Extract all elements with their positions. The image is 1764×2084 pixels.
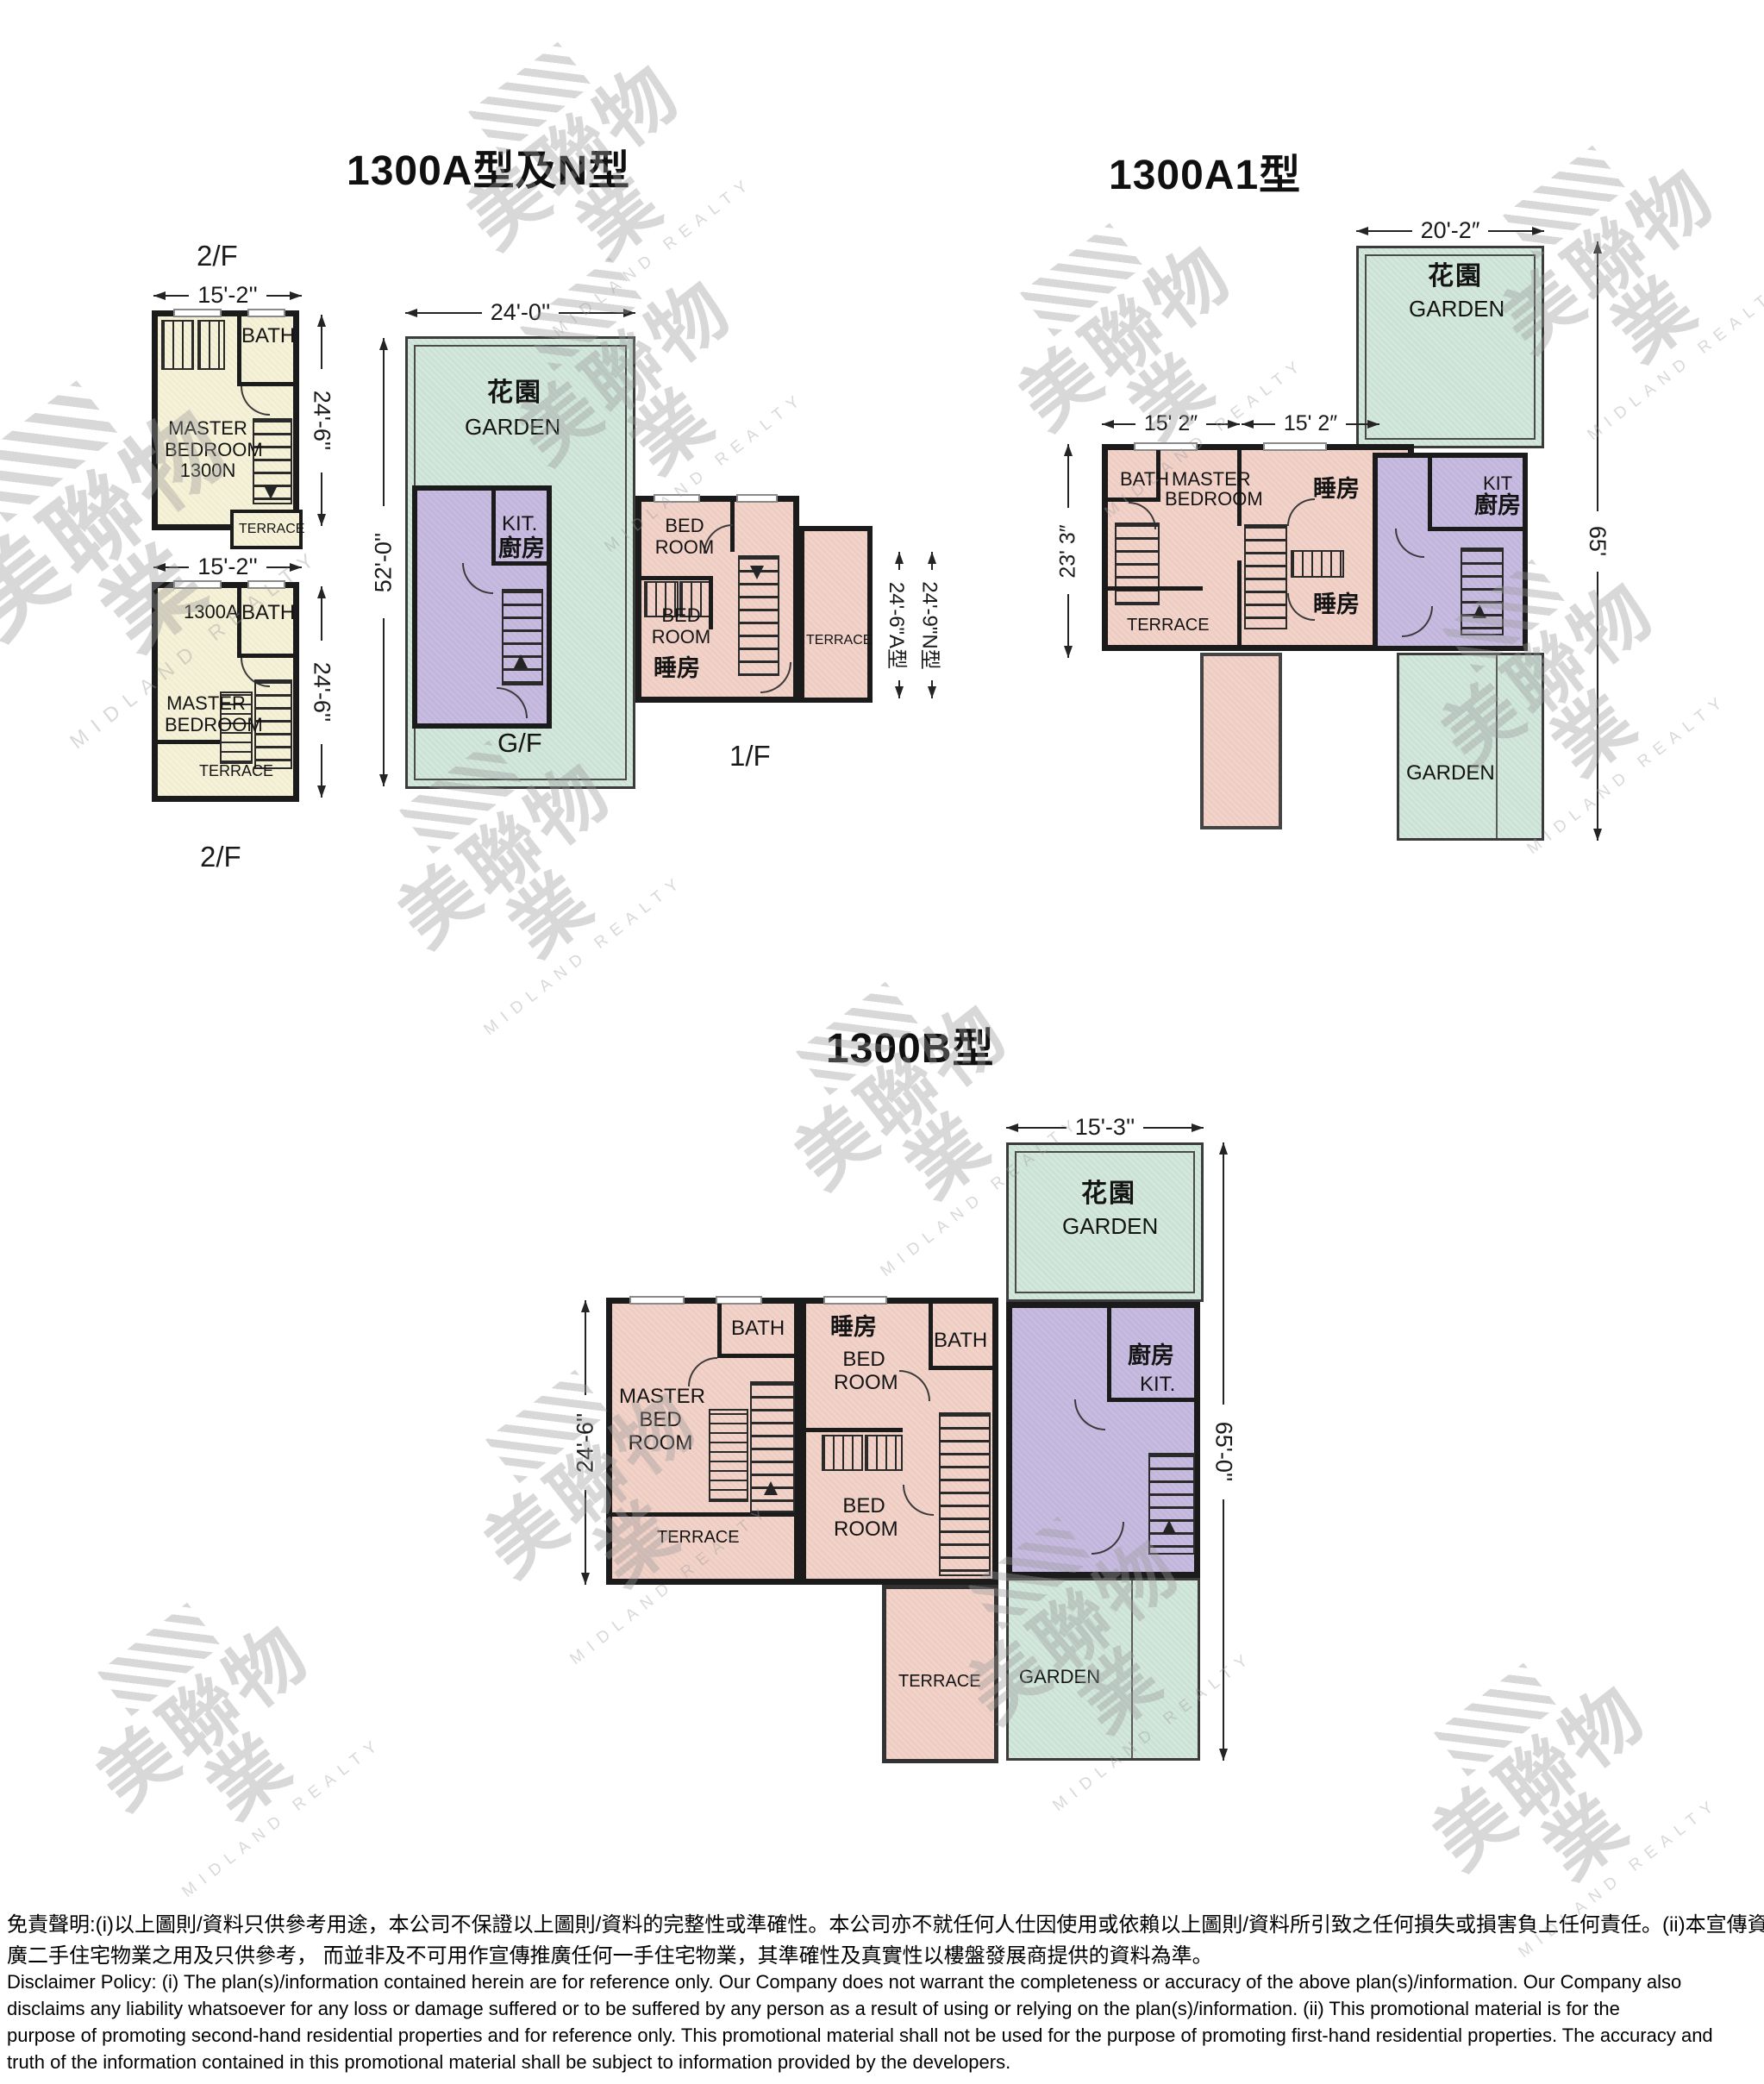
dim-text: 23' 3″ [1056, 524, 1081, 578]
section-title-1300a-n: 1300A型及N型 [347, 136, 630, 197]
dim-15-2-n2f: 15'-2'' [153, 282, 302, 309]
staircase [502, 589, 543, 685]
garden-label-en: GARDEN [465, 415, 560, 440]
stair-arrow-down [264, 485, 278, 499]
stair-arrow-down [750, 566, 764, 579]
garden-label-zh: 花園 [487, 379, 542, 408]
watermark-en: MIDLAND REALTY [1492, 1775, 1748, 1981]
door-arc [1287, 498, 1315, 526]
garden-divider [1496, 655, 1498, 838]
floorplan-page: 1300A型及N型 1300A1型 1300B型 2/F 15'-2'' BAT… [0, 0, 1764, 2084]
dim-15-3-b: 15'-3'' [1006, 1114, 1204, 1141]
window [716, 1296, 762, 1305]
dim-text-box: 52'-0'' [369, 506, 398, 618]
room-label-bedroom-2-zh: 睡房 [654, 655, 700, 681]
dim-65-0-b: 65'-0'' [1209, 1142, 1238, 1761]
dim-line [1488, 230, 1544, 232]
disclaimer-zh-line1: 免責聲明:(i)以上圖則/資料只供參考用途，本公司不保證以上圖則/資料的完整性或… [7, 1907, 1764, 1937]
dim-line [559, 312, 635, 314]
dim-line [321, 472, 322, 527]
a1-garden-top: 花園 GARDEN [1356, 246, 1544, 448]
room-label-master-bedroom: MASTER BED ROOM [619, 1386, 702, 1455]
room-label-bath: BATH [934, 1330, 987, 1353]
wall [806, 1428, 903, 1432]
dim-line [1067, 444, 1069, 508]
room-label-kit: KIT. [502, 513, 537, 536]
room-label-bath: BATH [1120, 469, 1169, 491]
section-title-1300b: 1300B型 [826, 1014, 994, 1074]
dim-line [1102, 423, 1135, 425]
window [1263, 442, 1327, 451]
dim-24-6-a-type: 24'-6"A型 [885, 552, 914, 698]
room-label-terrace: TERRACE [806, 633, 866, 648]
dim-text-box: 24'-6"A型 [885, 570, 914, 680]
room-label-bedroom-bottom: BED ROOM [834, 1495, 894, 1542]
closet [161, 320, 194, 370]
dim-24-0-gf: 24'-0'' [405, 299, 635, 326]
label-line: BED [834, 1495, 894, 1518]
dim-line [1242, 423, 1275, 425]
dim-text-box: 65'-0'' [1209, 1405, 1238, 1499]
watermark-en: MIDLAND REALTY [155, 1715, 411, 1921]
midland-logo-stripes [1020, 223, 1143, 337]
dim-line [321, 315, 322, 369]
door-arc [462, 563, 493, 594]
room-label-kitchen-zh: 廚房 [498, 535, 545, 561]
b-unit-middle: 睡房 BED ROOM BATH BED ROOM [800, 1298, 998, 1585]
wall [1237, 560, 1242, 645]
dim-text: 65' [1585, 526, 1611, 556]
a1-unit-kitchen: KIT 廚房 [1373, 453, 1528, 651]
dim-line [153, 295, 189, 297]
door-arc [903, 1485, 934, 1516]
staircase [939, 1412, 991, 1576]
room-label-terrace: TERRACE [898, 1672, 981, 1691]
room-label-kitchen-zh: 廚房 [1474, 492, 1521, 518]
watermark-en: MIDLAND REALTY [457, 853, 713, 1059]
room-label-bedroom: BEDROOM [1165, 489, 1263, 510]
dim-line [266, 566, 302, 568]
dim-text-box: 24'-9"N型 [917, 570, 947, 680]
window [823, 1296, 887, 1305]
unit-label-1300a: 1300A [184, 602, 239, 623]
disclaimer-zh-line2: 廣二手住宅物業之用及只供參考， 而並非及不可用作宣傳推廣任何一手住宅物業，其準確… [7, 1938, 1213, 1968]
room-label-br2-zh: 睡房 [1313, 591, 1360, 617]
label-line: MASTER [619, 1386, 702, 1409]
b-garden-bottom: GARDEN [1006, 1578, 1200, 1761]
midland-logo-stripes [97, 1603, 221, 1717]
window [736, 494, 778, 503]
label-line: ROOM [834, 1372, 894, 1395]
dim-line [1223, 1499, 1224, 1762]
label-line: MASTER [165, 693, 247, 715]
label-line: 1300N [165, 460, 251, 482]
closet [822, 1435, 863, 1471]
wall [1107, 1398, 1194, 1402]
dim-text: 65'-0'' [1210, 1422, 1237, 1482]
staircase [1244, 524, 1287, 629]
window [654, 494, 700, 503]
dim-text: 24'-6'' [309, 391, 335, 451]
dim-24-9-n-type: 24'-9"N型 [917, 552, 947, 698]
door-arc [1287, 593, 1315, 621]
a1-terrace-extension [1200, 653, 1282, 829]
watermark-zh: 美聯物業 [59, 1591, 397, 1901]
a1-unit-main: BATH MASTER BEDROOM 睡房 睡房 TERRACE [1102, 444, 1414, 651]
dim-line [1143, 1127, 1204, 1129]
dim-line [585, 1300, 586, 1395]
dim-line [1006, 1127, 1067, 1129]
dim-text: 20'-2″ [1412, 217, 1489, 244]
floor-label-gf: G/F [497, 729, 542, 759]
dim-line [931, 552, 933, 570]
room-label-kit: KIT [1483, 473, 1512, 495]
dim-line [1067, 594, 1069, 658]
wall [612, 1512, 794, 1517]
dim-line [153, 566, 189, 568]
wall [929, 1366, 992, 1370]
dim-24-6-a2f: 24'-6'' [307, 586, 336, 798]
door-arc [497, 687, 528, 718]
dim-text: 15' 2″ [1275, 411, 1346, 436]
room-label-kit: KIT. [1140, 1374, 1175, 1397]
dim-line [1206, 423, 1240, 425]
section-title-1300a1: 1300A1型 [1109, 141, 1301, 201]
gf-unit: KIT. 廚房 [412, 485, 552, 729]
room-label-br-zh: 睡房 [830, 1314, 877, 1340]
door-arc [1395, 529, 1424, 558]
label-line: BEDROOM [165, 715, 247, 736]
dim-line [898, 680, 900, 698]
door-arc [1092, 1522, 1124, 1555]
room-label-bath: BATH [241, 602, 295, 625]
dim-text: 52'-0'' [371, 532, 397, 592]
b-unit-left: BATH MASTER BED ROOM TERRACE [606, 1298, 800, 1585]
garden-label-zh: 花園 [1428, 262, 1483, 291]
dim-line [383, 618, 385, 786]
dim-text-box: 24'-6'' [307, 641, 336, 744]
midland-logo-stripes [0, 380, 119, 523]
label-line: BED [645, 605, 717, 627]
label-line: MASTER [165, 418, 251, 440]
door-arc [1074, 1399, 1105, 1430]
closet [865, 1435, 903, 1471]
wall [1428, 527, 1523, 531]
dim-15-2-a2f: 15'-2'' [153, 554, 302, 580]
closet [709, 1409, 748, 1502]
dim-text: 24'-6"A型 [885, 581, 915, 668]
wall [1428, 458, 1432, 530]
dim-65-a1: 65' [1583, 241, 1612, 841]
stair-arrow-up [1473, 604, 1486, 618]
room-label-br1-zh: 睡房 [1313, 476, 1360, 502]
dim-24-6-n2f: 24'-6'' [307, 315, 336, 526]
stair-arrow-up [764, 1481, 778, 1495]
terrace-box: TERRACE [230, 510, 303, 549]
dim-20-2-a1: 20'-2″ [1356, 217, 1544, 244]
stair-arrow-up [1162, 1520, 1176, 1534]
window [173, 309, 222, 317]
wall [717, 1354, 794, 1358]
label-line: ROOM [645, 627, 717, 648]
dim-15-2-a1-right: 15' 2″ [1242, 411, 1379, 436]
dim-text-box: 23' 3″ [1054, 508, 1083, 594]
dim-text: 15'-3'' [1067, 1114, 1144, 1141]
dim-text: 24'-6'' [572, 1412, 599, 1473]
garden-label-en: GARDEN [1409, 297, 1504, 322]
wall [491, 491, 496, 565]
dim-text-box: 24'-6'' [571, 1395, 600, 1490]
wall [1108, 586, 1203, 591]
window [247, 309, 285, 317]
floor-label-2f-n: 2/F [197, 240, 238, 272]
garden-label-en: GARDEN [1062, 1214, 1158, 1239]
dim-line [383, 338, 385, 506]
dim-line [266, 295, 302, 297]
wall [491, 561, 547, 566]
door-arc [688, 1357, 717, 1386]
disclaimer-en-line4: truth of the information contained in th… [7, 2051, 1010, 2074]
dim-line [1346, 423, 1379, 425]
floor-label-1f: 1/F [729, 740, 771, 773]
dim-15-2-a1-left: 15' 2″ [1102, 411, 1240, 436]
b-unit-kitchen: 廚房 KIT. [1006, 1302, 1200, 1578]
ff-terrace: TERRACE [799, 526, 873, 703]
dim-text: 24'-6'' [309, 662, 335, 723]
wall [1108, 498, 1160, 502]
door-arc [899, 1370, 930, 1401]
closet [197, 320, 225, 370]
room-label-terrace: TERRACE [657, 1528, 740, 1547]
dim-text: 24'-0'' [482, 299, 560, 326]
room-label-master-bedroom: MASTER BEDROOM 1300N [165, 418, 251, 482]
dim-line [321, 586, 322, 641]
window [1134, 442, 1198, 451]
garden-label-zh: 花園 [1081, 1180, 1136, 1209]
room-label-bath: BATH [241, 325, 295, 348]
dim-text-box: 24'-6'' [307, 369, 336, 472]
b-terrace-strip: TERRACE [882, 1585, 998, 1763]
dim-line [1223, 1142, 1224, 1405]
room-label-bath: BATH [731, 1317, 785, 1341]
label-line: BEDROOM [165, 440, 251, 461]
midland-logo-stripes [1434, 1663, 1557, 1777]
dim-24-6-b: 24'-6'' [571, 1300, 600, 1585]
label-line: ROOM [834, 1518, 894, 1542]
label-line: ROOM [652, 537, 717, 559]
plan-1300a-2f: 1300A BATH MASTER BEDROOM TERRACE [152, 582, 299, 802]
dim-line [931, 680, 933, 698]
staircase [1115, 523, 1160, 605]
ff-unit: BED ROOM BED ROOM 睡房 [635, 496, 799, 703]
floor-label-2f-a: 2/F [200, 841, 241, 873]
room-label-terrace: TERRACE [239, 522, 304, 537]
disclaimer-en-line2: disclaims any liability whatsoever for a… [7, 1998, 1620, 2020]
dim-line [1597, 572, 1598, 842]
wall [158, 740, 220, 744]
wall [641, 576, 710, 580]
window [247, 580, 285, 589]
midland-watermark: 美聯物業 MIDLAND REALTY [20, 1542, 411, 1920]
b-garden-top: 花園 GARDEN [1006, 1142, 1204, 1302]
room-label-master-bedroom: MASTER BEDROOM [165, 693, 247, 735]
garden-label-en: GARDEN [1406, 762, 1495, 785]
room-label-terrace: TERRACE [199, 762, 273, 779]
garden-divider [1131, 1580, 1133, 1758]
door-arc [1402, 606, 1433, 637]
a1-garden-bottom: GARDEN [1397, 653, 1544, 841]
dim-line [1356, 230, 1412, 232]
label-line: BED [834, 1349, 894, 1372]
dim-text-box: 65' [1583, 511, 1612, 572]
door-arc [241, 386, 270, 416]
dim-text: 15'-2'' [189, 282, 266, 309]
room-label-bedroom-2: BED ROOM [645, 605, 717, 648]
dim-line [1597, 241, 1598, 511]
room-label-bedroom-1: BED ROOM [652, 516, 717, 558]
door-arc [760, 662, 791, 693]
dim-line [898, 552, 900, 570]
room-label-master: MASTER [1172, 469, 1251, 491]
dim-line [405, 312, 482, 314]
label-line: ROOM [619, 1432, 702, 1455]
staircase [1461, 548, 1504, 635]
wall [929, 1304, 933, 1368]
dim-text: 15'-2'' [189, 554, 266, 580]
plan-1300n-2f: BATH MASTER BEDROOM 1300N TERRACE [152, 310, 299, 530]
stair-arrow-up [514, 654, 528, 668]
dim-line [321, 744, 322, 798]
room-label-kitchen-zh: 廚房 [1128, 1342, 1174, 1368]
room-label-terrace: TERRACE [1127, 616, 1210, 635]
wall [717, 1304, 722, 1357]
label-line: BED [619, 1409, 702, 1432]
garden-label-en: GARDEN [1019, 1667, 1100, 1688]
closet [1291, 550, 1344, 578]
dim-23-3-a1: 23' 3″ [1054, 444, 1083, 658]
staircase [1148, 1453, 1195, 1555]
room-label-bedroom-top: BED ROOM [834, 1349, 894, 1395]
disclaimer-en-line1: Disclaimer Policy: (i) The plan(s)/infor… [7, 1971, 1681, 1993]
window [173, 580, 222, 589]
dim-52-0-gf: 52'-0'' [369, 338, 398, 786]
dim-line [585, 1490, 586, 1585]
dim-text: 15' 2″ [1135, 411, 1206, 436]
label-line: BED [652, 516, 717, 537]
wall [1107, 1308, 1111, 1401]
dim-text: 24'-9"N型 [917, 581, 948, 669]
disclaimer-en-line3: purpose of promoting second-hand residen… [7, 2025, 1713, 2047]
window [629, 1296, 685, 1305]
